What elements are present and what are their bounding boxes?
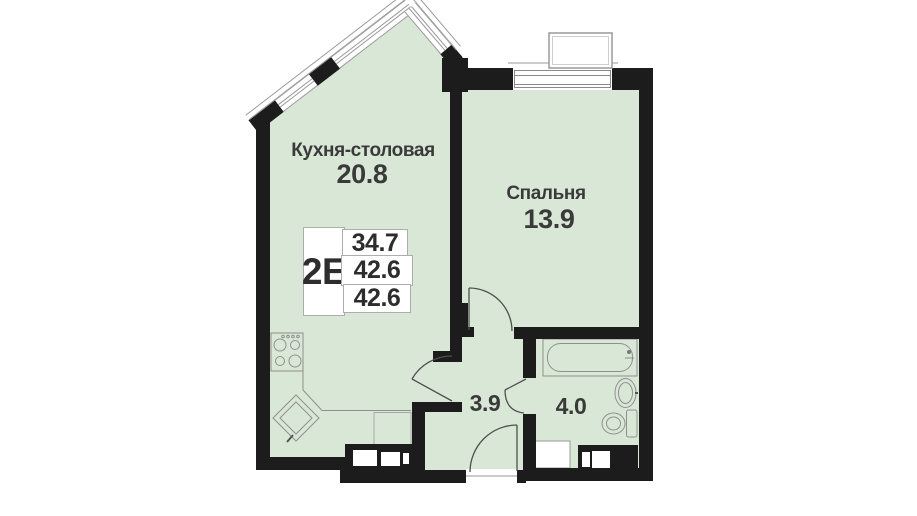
area-row-3: 42.6 [343,284,411,313]
wall-bedroom-bottom [514,327,653,339]
wall-bottom-left [256,457,352,470]
ac-basket-icon [549,33,612,68]
wall-bathroom-left-lower [523,414,536,472]
area-row-2: 42.6 [341,255,413,286]
floor-plan-drawing [0,0,917,516]
kitchen-vent-shaft [345,444,425,471]
wall-right [639,68,653,481]
entrance-opening [466,469,517,484]
washing-machine-space [533,441,570,468]
area-row-1: 34.7 [342,229,408,257]
kitchen-area: 20.8 [312,159,412,190]
unit-type-cell: 2E [303,227,345,316]
wall-bathroom-left-upper [523,339,536,378]
floor-plan-canvas: Кухня-столовая 20.8 Спальня 13.9 3.9 4.0… [0,0,917,516]
bathroom-area: 4.0 [541,393,601,420]
hallway-area: 3.9 [455,390,515,417]
wall-notch-foot [462,327,474,337]
bathroom-vent-shaft [578,445,638,480]
wall-left [256,116,270,470]
bedroom-area: 13.9 [499,204,599,235]
wall-bedroom-top-right [611,68,653,90]
bedroom-label: Спальня [496,183,596,205]
